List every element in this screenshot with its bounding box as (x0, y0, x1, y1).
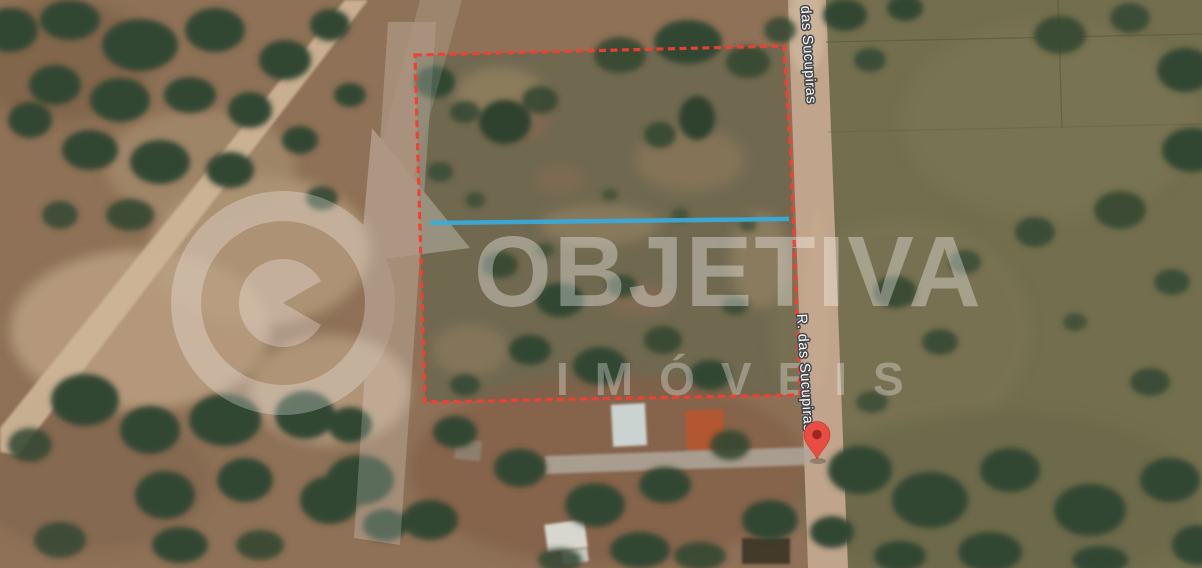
road-name-label-top: das Sucupiras (797, 5, 819, 104)
road-name-label-mid: R. das Sucupiras (793, 313, 816, 432)
satellite-listing-image: OBJETIVA IMÓVEIS das Sucupiras R. das Su… (0, 0, 1202, 568)
map-overlays: das Sucupiras R. das Sucupiras (0, 0, 1202, 568)
map-pin-icon (804, 422, 830, 465)
lot-divider-line (430, 219, 789, 223)
